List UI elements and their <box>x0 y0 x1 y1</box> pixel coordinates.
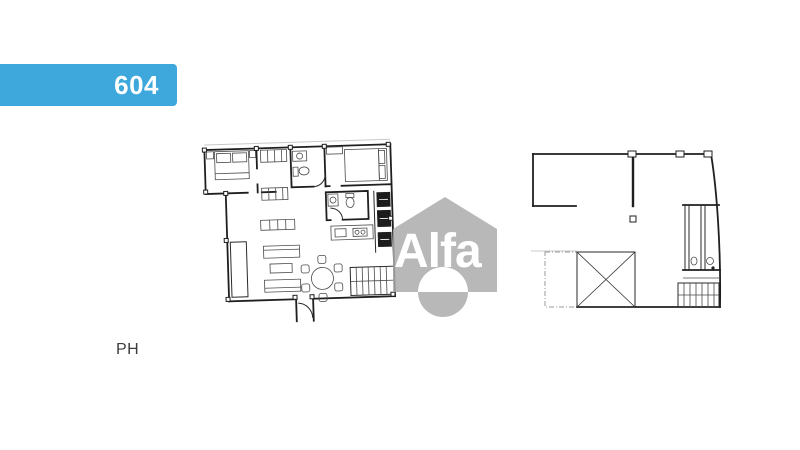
dining-table <box>301 255 343 302</box>
living-room <box>261 219 301 292</box>
bedroom-1 <box>206 148 257 194</box>
void-x <box>577 252 635 307</box>
outer-walls <box>533 154 720 307</box>
ph-stairs <box>678 283 719 307</box>
bathroom-1 <box>290 146 325 187</box>
floor-plan-penthouse <box>531 150 727 314</box>
center-wall <box>630 154 636 222</box>
entry-door-arc <box>298 303 312 318</box>
bathroom-2 <box>326 191 369 220</box>
ph-bathroom <box>683 205 720 278</box>
listing-image-canvas: 604 <box>0 0 800 450</box>
bedroom-2 <box>324 145 391 186</box>
pergola-dashed <box>545 252 577 307</box>
overhang-line <box>204 139 390 145</box>
alfa-watermark: Alfa Alfa <box>378 188 510 306</box>
floor-label: PH <box>116 341 139 359</box>
unit-number-banner: 604 <box>0 64 177 106</box>
balcony <box>230 242 248 297</box>
unit-number-label: 604 <box>114 72 159 98</box>
